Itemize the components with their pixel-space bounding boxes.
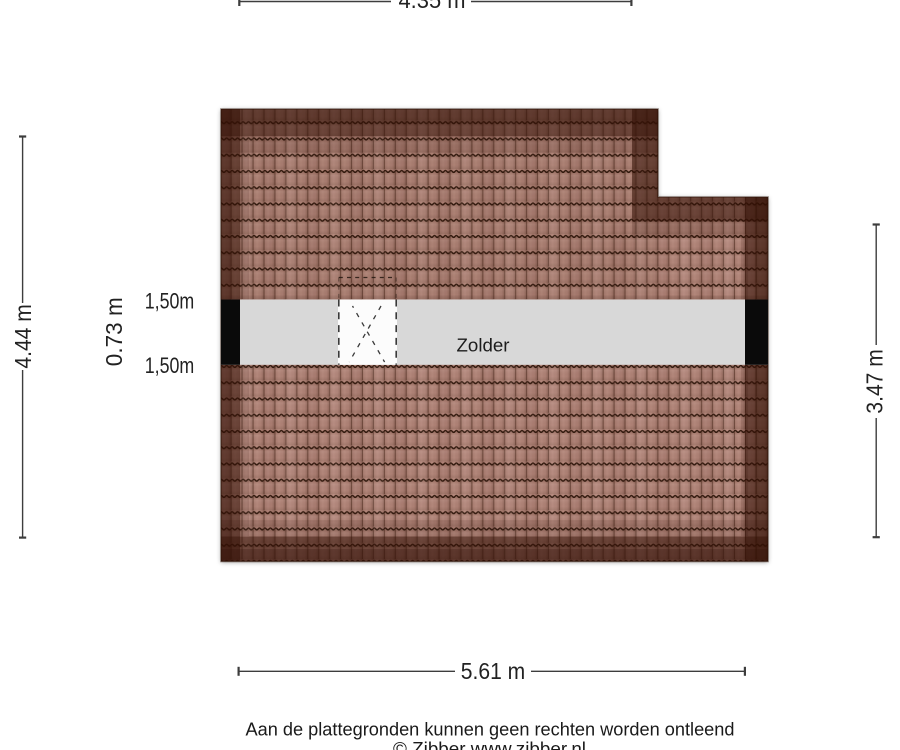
svg-text:Aan de plattegronden kunnen ge: Aan de plattegronden kunnen geen rechten… bbox=[246, 718, 735, 739]
svg-text:1,50m: 1,50m bbox=[145, 353, 195, 378]
svg-text:© Zibber www.zibber.nl: © Zibber www.zibber.nl bbox=[393, 738, 586, 750]
svg-text:5.61 m: 5.61 m bbox=[461, 658, 526, 684]
svg-text:4.35 m: 4.35 m bbox=[399, 0, 466, 13]
svg-text:3.47 m: 3.47 m bbox=[862, 349, 888, 414]
svg-text:Zolder: Zolder bbox=[457, 335, 510, 355]
svg-text:1,50m: 1,50m bbox=[145, 289, 195, 314]
svg-text:4.44 m: 4.44 m bbox=[10, 304, 36, 369]
svg-text:0.73 m: 0.73 m bbox=[101, 297, 127, 366]
